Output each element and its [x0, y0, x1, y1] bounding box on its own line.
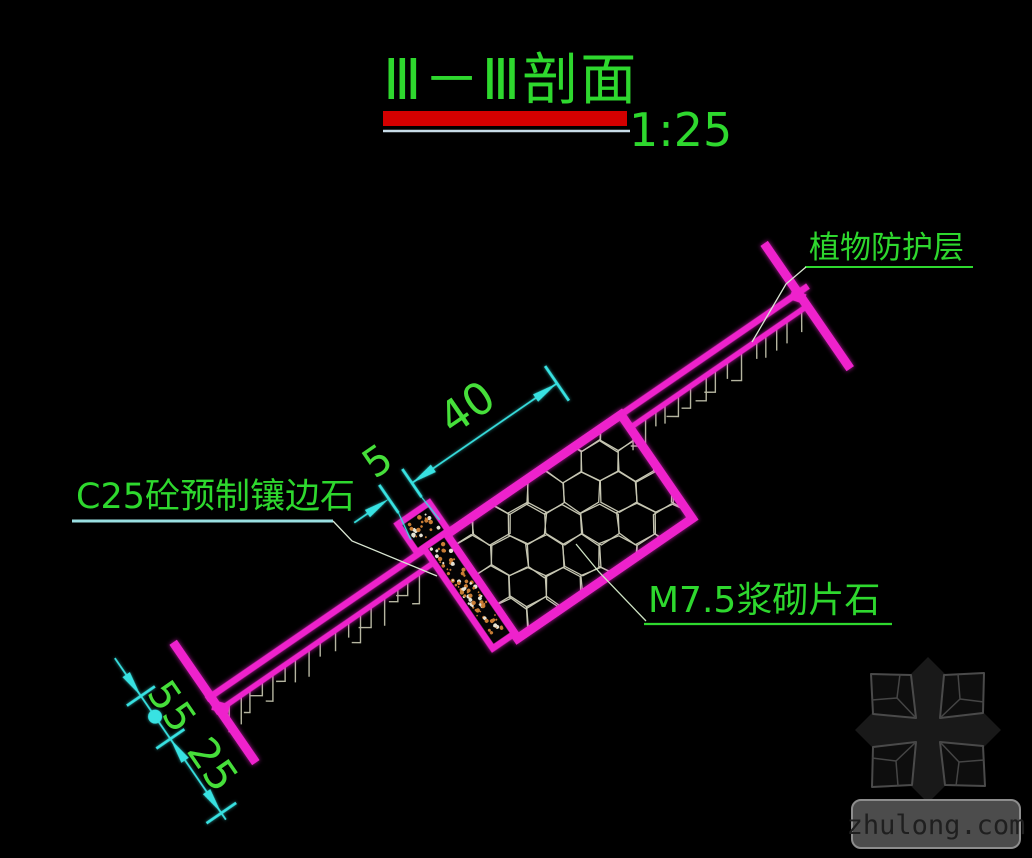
- watermark-petal: [872, 742, 916, 787]
- hex-hatch-cell: [509, 567, 547, 609]
- dim-tick: [402, 469, 421, 497]
- label-masonry: M7.5浆砌片石: [648, 580, 880, 621]
- hex-hatch-cell: [617, 630, 655, 670]
- hex-hatch-cell: [544, 377, 582, 418]
- hex-hatch-cell: [400, 439, 435, 483]
- hex-hatch-cell: [419, 597, 455, 638]
- label-edging-stone: C25砼预制镶边石: [76, 477, 355, 517]
- dim-tick: [545, 366, 569, 401]
- title-block: Ⅲ－Ⅲ剖面 1:25: [383, 48, 732, 157]
- title-scale: 1:25: [629, 103, 732, 157]
- annotations: 植物防护层 C25砼预制镶边石 M7.5浆砌片石: [72, 230, 973, 624]
- hex-hatch-cell: [655, 630, 692, 670]
- hex-hatch-cell: [581, 378, 617, 420]
- watermark-logo: zhulong.com: [847, 657, 1026, 848]
- dim-text-edging-width: 5: [354, 435, 401, 487]
- hex-hatch-cell: [437, 440, 474, 481]
- hex-hatch-cell: [600, 599, 637, 639]
- title-underbar-red: [383, 111, 627, 126]
- watermark-text: zhulong.com: [847, 810, 1026, 841]
- slope-underside-line-upper: [630, 306, 807, 428]
- hex-hatch-cell: [690, 439, 728, 483]
- hex-hatch-cell: [544, 629, 583, 672]
- watermark-petal: [940, 742, 985, 786]
- watermark-petal: [940, 673, 984, 718]
- hex-hatch-cell: [583, 630, 619, 671]
- dim-tick: [379, 485, 398, 513]
- ground-hatch-mark: [721, 352, 754, 385]
- dim-text-slope-length: 40: [430, 371, 505, 445]
- ground-hatch-mark: [341, 614, 373, 646]
- hex-hatch-cell: [617, 503, 656, 544]
- structure-lines-group: [169, 232, 879, 804]
- section-drawing-canvas: zhulong.com: [0, 0, 1032, 858]
- hex-hatch-cell: [690, 628, 729, 671]
- ground-hatch-mark: [400, 574, 433, 607]
- hex-hatch-cell: [400, 628, 436, 670]
- section-title: Ⅲ－Ⅲ剖面: [383, 48, 638, 113]
- dim-tick: [206, 803, 236, 823]
- cad-section-drawing: zhulong.com: [0, 0, 1032, 858]
- watermark-petal: [871, 674, 916, 718]
- hex-hatch-cell: [526, 409, 564, 450]
- slope-underside-line-lower: [215, 563, 433, 713]
- hex-hatch-cell: [581, 504, 619, 545]
- hex-hatch-cell: [672, 533, 709, 577]
- hex-hatch-cell: [473, 440, 510, 484]
- label-plant-protection: 植物防护层: [809, 230, 964, 266]
- hex-hatch-cell: [401, 378, 435, 420]
- hex-hatch-cell: [435, 630, 471, 673]
- hex-hatch-cell: [691, 502, 728, 546]
